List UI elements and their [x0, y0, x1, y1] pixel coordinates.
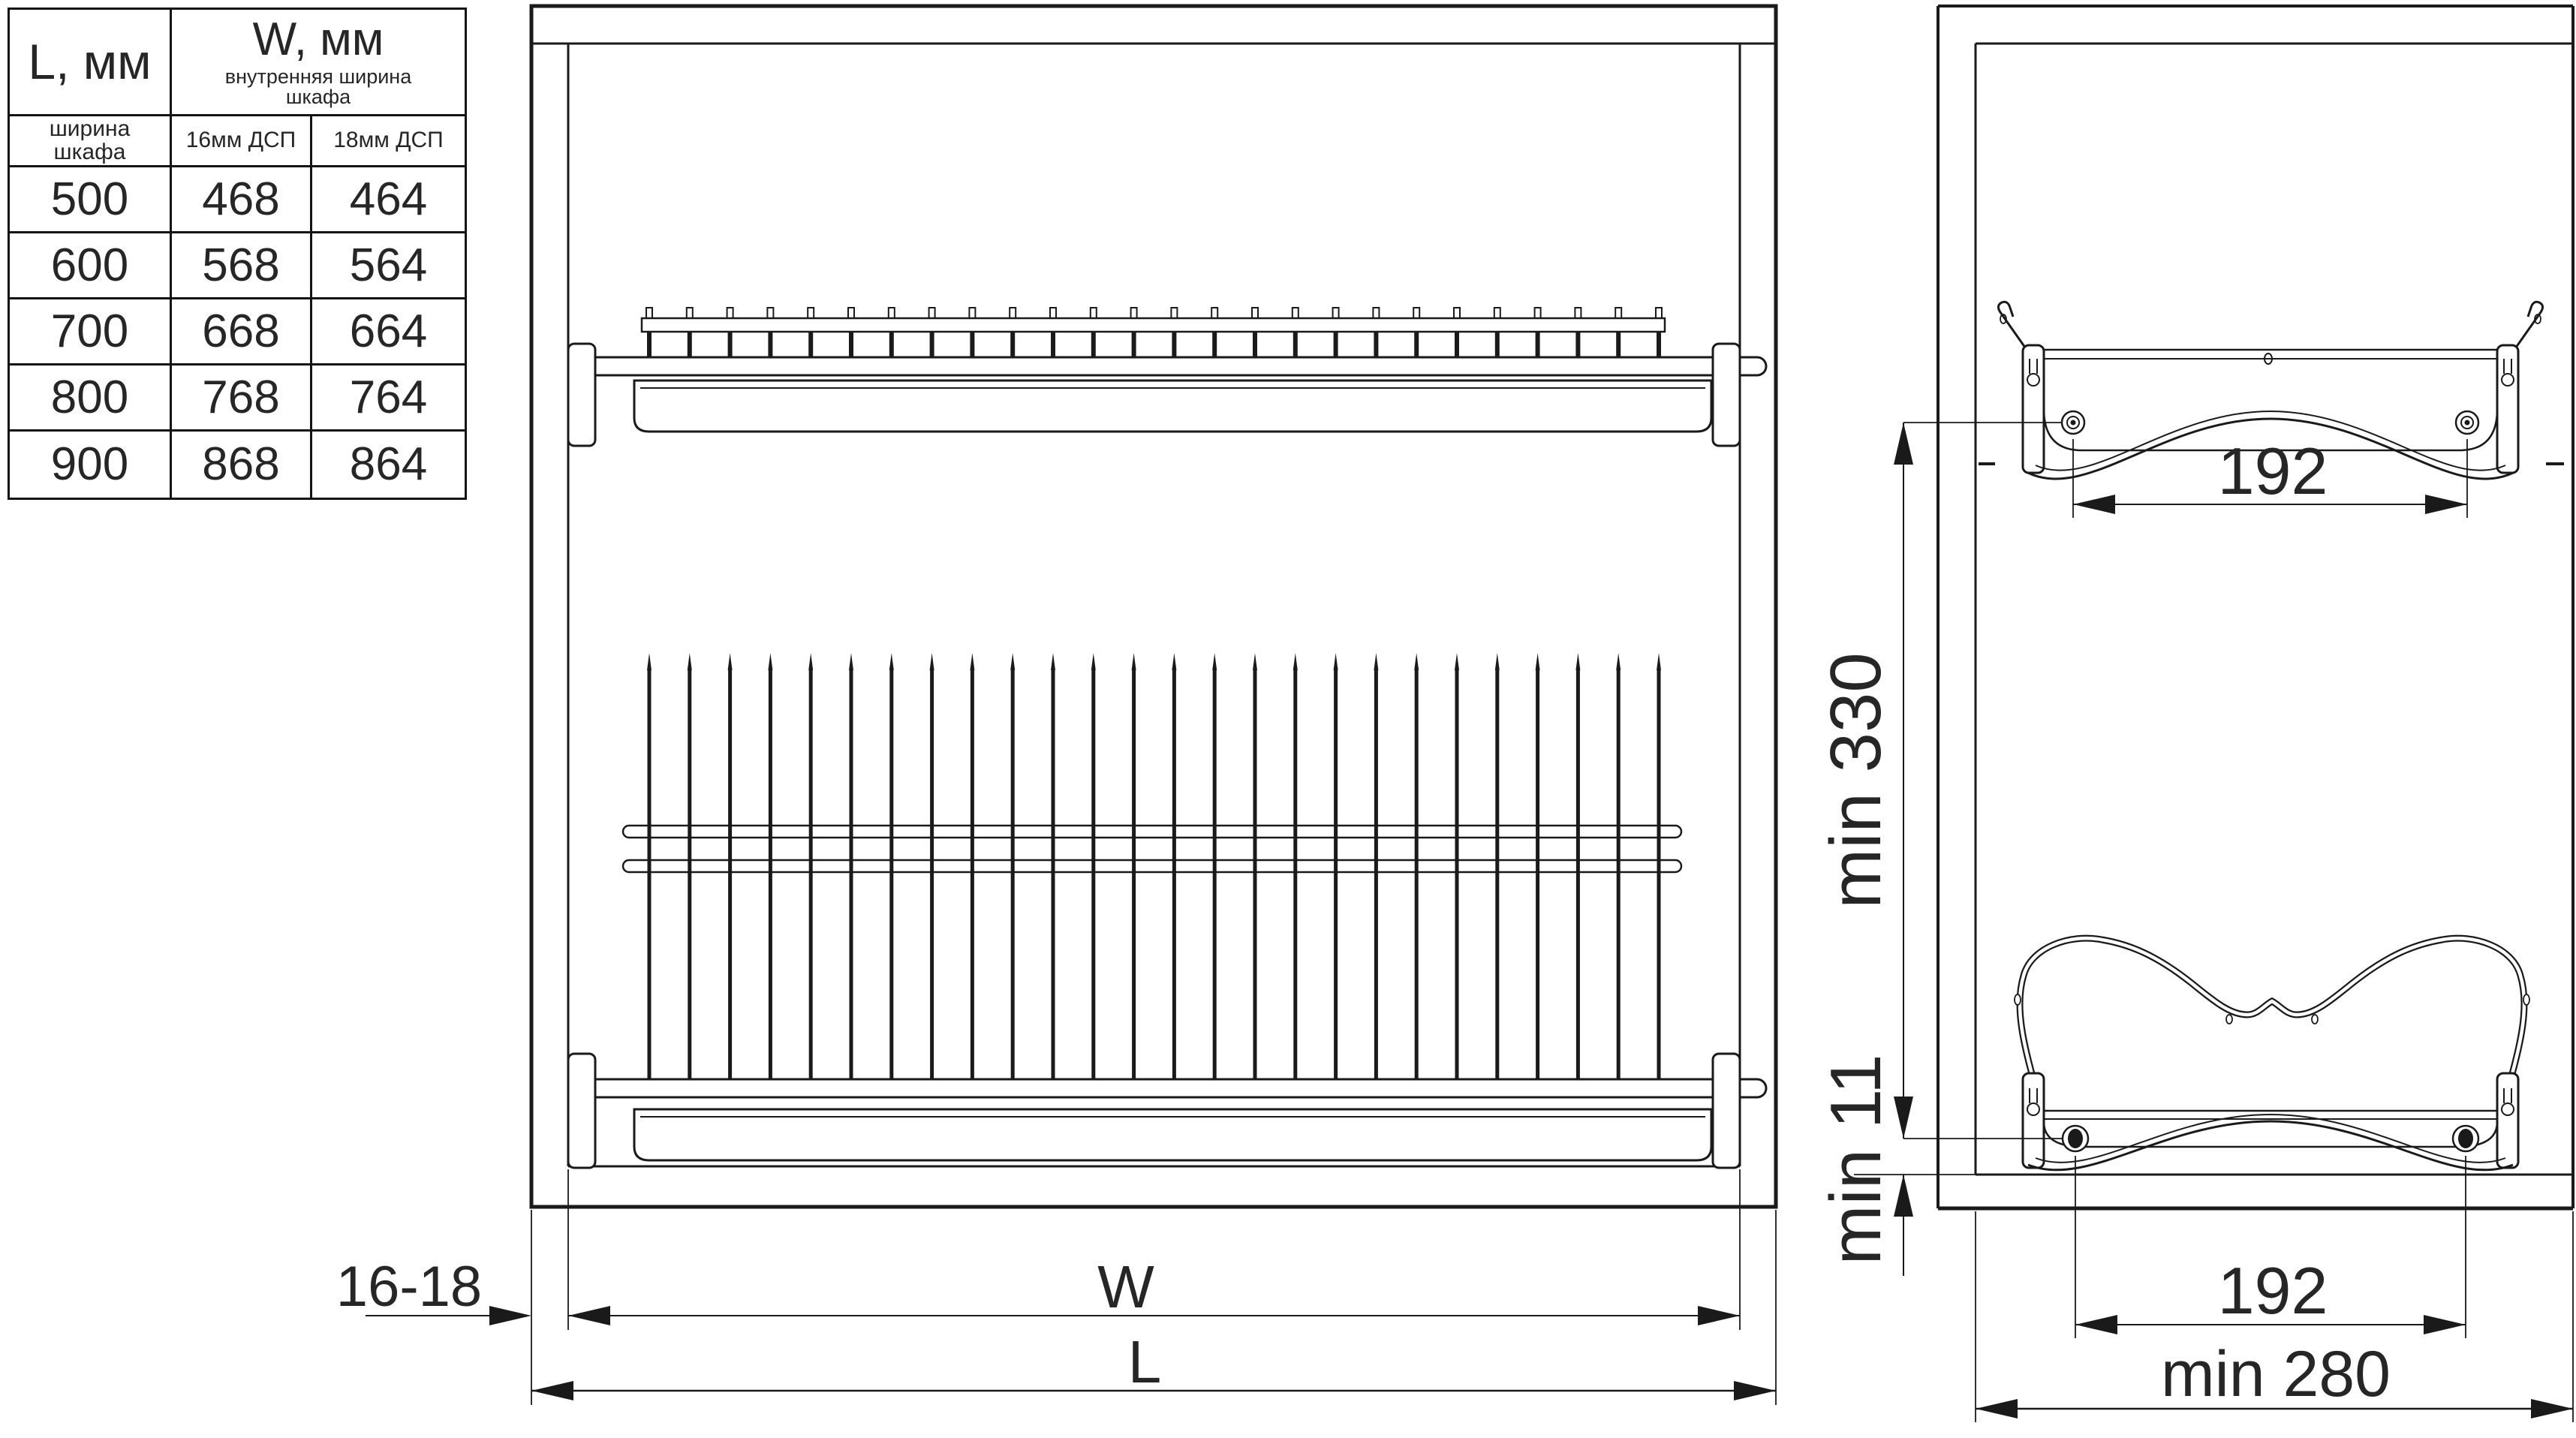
plate-pin-tip — [1414, 653, 1419, 670]
upper-rack-top-rail — [642, 318, 1665, 332]
shelf-post-cap — [727, 308, 733, 318]
table-cell: 668 — [172, 299, 312, 366]
table-header-W: W, мм внутренняя ширина шкафа — [172, 10, 465, 116]
table-cell: 500 — [10, 167, 172, 233]
plate-pin-tip — [808, 653, 813, 670]
technical-drawing-page: 16-18 W L — [0, 0, 2576, 1438]
upper-rack-posts — [646, 308, 1662, 359]
shelf-post-cap — [889, 308, 895, 318]
plate-pin-tip — [1334, 653, 1338, 670]
side-view: 192 min 330 min 11 — [1816, 6, 2573, 1422]
lower-rack-support-bar — [588, 1079, 1766, 1097]
plate-pin-tip — [728, 653, 733, 670]
table-subheader-16mm: 16мм ДСП — [172, 116, 312, 167]
table-cell: 568 — [172, 233, 312, 299]
plate-pin-tip — [1374, 653, 1378, 670]
upper-dish-rack — [568, 308, 1766, 446]
shelf-post-cap — [1293, 308, 1299, 318]
shelf-post-cap — [687, 308, 693, 318]
plate-pin-tip — [1616, 653, 1621, 670]
plate-pin-tip — [1293, 653, 1298, 670]
size-table: L, мм W, мм внутренняя ширина шкафа шири… — [8, 8, 467, 500]
table-cell: 468 — [172, 167, 312, 233]
upper-rack-right-endcap — [1713, 344, 1740, 446]
dim-top-span-label: 192 — [2218, 434, 2328, 508]
table-cell: 900 — [10, 432, 172, 498]
shelf-post-cap — [848, 308, 854, 318]
dim-outer-width: L — [531, 1328, 1776, 1400]
plate-pin-tip — [889, 653, 894, 670]
front-dimensions: 16-18 W L — [336, 1169, 1776, 1405]
shelf-post-cap — [1171, 308, 1177, 318]
shelf-post-cap — [1413, 308, 1419, 318]
table-cell: 800 — [10, 366, 172, 432]
dim-min-height-label: min 330 — [1816, 652, 1896, 909]
table-header-W-text: W, мм — [253, 16, 384, 63]
plate-holder-wire — [2020, 938, 2524, 1090]
plate-pin-tip — [1212, 653, 1217, 670]
dim-bottom-span: 192 — [2075, 1156, 2466, 1338]
plate-pin-tip — [1010, 653, 1015, 670]
plate-pin-tip — [647, 653, 652, 670]
lower-rack-left-endcap — [568, 1054, 595, 1168]
lower-rack-rail-2 — [623, 860, 1681, 872]
plate-pin-tip — [930, 653, 934, 670]
dim-wall-thickness-label: 16-18 — [336, 1255, 482, 1319]
table-cell: 600 — [10, 233, 172, 299]
plate-pin-tip — [1575, 653, 1580, 670]
table-cell: 664 — [312, 299, 465, 366]
table-cell: 868 — [172, 432, 312, 498]
shelf-post-cap — [1373, 308, 1379, 318]
plate-pin-tip — [849, 653, 853, 670]
table-cell: 700 — [10, 299, 172, 366]
table-header-L-text: L, мм — [28, 37, 151, 87]
plate-pin-tip — [1536, 653, 1540, 670]
dim-inner-width: W — [568, 1253, 1740, 1325]
shelf-post-cap — [1615, 308, 1621, 318]
table-header-L: L, мм — [10, 10, 172, 116]
front-view: 16-18 W L — [336, 6, 1776, 1405]
table-cell: 768 — [172, 366, 312, 432]
upper-rack-support-bar — [588, 357, 1766, 375]
shelf-post-cap — [1010, 308, 1016, 318]
dim-wall-thickness: 16-18 — [336, 1255, 531, 1325]
table-header-W-subtext: внутренняя ширина шкафа — [225, 67, 411, 108]
table-subheader-18mm: 18мм ДСП — [312, 116, 465, 167]
table-subheader-width: ширина шкафа — [10, 116, 172, 167]
upper-rack-left-endcap — [568, 344, 595, 446]
shelf-post-cap — [1575, 308, 1581, 318]
lower-rack-pins — [647, 653, 1661, 1085]
plate-pin-tip — [970, 653, 974, 670]
shelf-post-cap — [1131, 308, 1137, 318]
shelf-post-cap — [1252, 308, 1258, 318]
shelf-post-cap — [1535, 308, 1541, 318]
lower-rack-rail-1 — [623, 826, 1681, 838]
dim-inner-width-label: W — [1097, 1253, 1154, 1320]
table-cell: 464 — [312, 167, 465, 233]
dim-min-depth-label: min 280 — [2161, 1338, 2391, 1410]
plate-pin-tip — [1253, 653, 1257, 670]
dim-bottom-span-label: 192 — [2218, 1253, 2328, 1328]
shelf-post-cap — [1494, 308, 1500, 318]
shelf-post-cap — [929, 308, 935, 318]
plate-pin-tip — [1495, 653, 1500, 670]
plate-pin-tip — [1132, 653, 1136, 670]
shelf-post-cap — [767, 308, 773, 318]
plate-pin-tip — [768, 653, 772, 670]
lower-rack-right-endcap — [1713, 1054, 1740, 1168]
shelf-post-cap — [1211, 308, 1217, 318]
upper-bracket-right-hook — [2512, 302, 2543, 353]
cabinet-outline — [531, 6, 1776, 1207]
upper-bracket-left-hook — [1998, 302, 2029, 353]
plate-pin-tip — [1657, 653, 1661, 670]
shelf-post-cap — [1091, 308, 1097, 318]
dim-outer-width-label: L — [1128, 1328, 1162, 1395]
table-cell: 864 — [312, 432, 465, 498]
lower-bracket-profile — [2015, 938, 2529, 1170]
shelf-post-cap — [1050, 308, 1056, 318]
shelf-post-cap — [646, 308, 652, 318]
shelf-post-cap — [1333, 308, 1339, 318]
upper-bracket-screw-holes — [2062, 411, 2478, 434]
side-dimensions: 192 min 330 min 11 — [1816, 423, 2573, 1422]
plate-pin-tip — [1455, 653, 1459, 670]
plate-pin-tip — [1051, 653, 1055, 670]
shelf-post-cap — [808, 308, 814, 318]
plate-pin-tip — [1172, 653, 1176, 670]
plate-pin-tip — [688, 653, 692, 670]
shelf-post-cap — [969, 308, 975, 318]
side-cabinet-outline — [1938, 6, 2573, 1208]
shelf-post-cap — [1656, 308, 1662, 318]
dim-top-span: 192 — [2073, 434, 2467, 518]
shelf-post-cap — [1454, 308, 1460, 318]
plate-pin-tip — [1091, 653, 1096, 670]
dim-min-offset-label: min 11 — [1816, 1054, 1896, 1265]
table-cell: 764 — [312, 366, 465, 432]
lower-plate-rack — [568, 653, 1766, 1168]
table-cell: 564 — [312, 233, 465, 299]
